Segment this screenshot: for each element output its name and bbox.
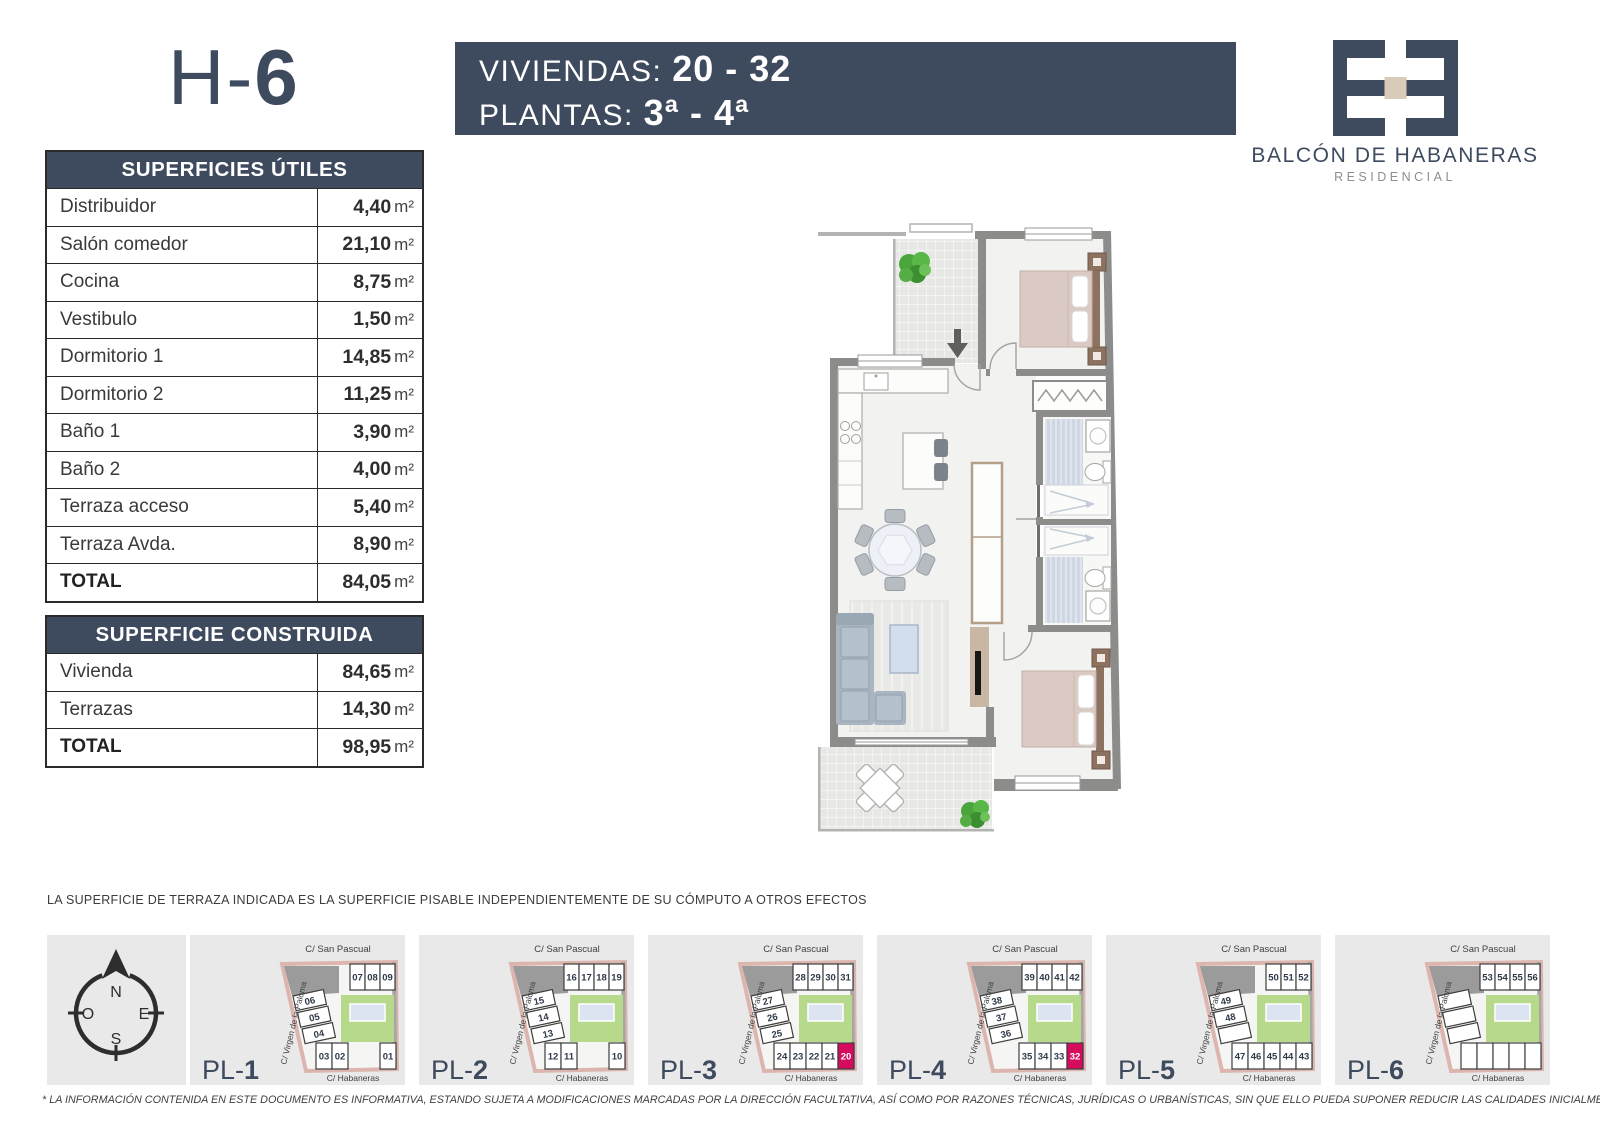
floor-thumbnail-pl-1: C/ San Pascual070809060504030201C/ Virge… <box>190 935 405 1085</box>
wardrobe <box>1033 381 1107 411</box>
plan-label: PL-4 <box>889 1055 946 1085</box>
superficie-construida-table: SUPERFICIE CONSTRUIDA Vivienda84,65m²Ter… <box>45 615 424 768</box>
unit-number: 11 <box>564 1052 575 1063</box>
unit-number: 34 <box>1038 1052 1049 1063</box>
unit-number: 18 <box>596 973 607 984</box>
row-label: Terraza acceso <box>47 489 317 526</box>
tv-icon <box>975 651 981 695</box>
floor-thumbnail-pl-5: C/ San Pascual50515249484746454443C/ Vir… <box>1106 935 1321 1085</box>
row-label: Terraza Avda. <box>47 527 317 564</box>
svg-text:48: 48 <box>1224 1012 1237 1025</box>
unit-cell <box>1477 1043 1493 1069</box>
street-top-label: C/ San Pascual <box>1221 944 1286 955</box>
plan-label: PL-2 <box>431 1055 488 1085</box>
compass-north-label: N <box>110 984 122 1001</box>
legal-disclaimer: * LA INFORMACIÓN CONTENIDA EN ESTE DOCUM… <box>42 1094 1572 1106</box>
site-plan-svg: C/ San Pascual3940414238373635343332C/ V… <box>877 935 1092 1085</box>
tv-wall <box>970 627 989 707</box>
site-plan-svg: C/ San Pascual070809060504030201C/ Virge… <box>190 935 405 1085</box>
unit-number: 44 <box>1283 1052 1294 1063</box>
row-value: 14,85m² <box>317 339 422 376</box>
floor-plan <box>800 223 1130 840</box>
unit-number: 12 <box>548 1052 559 1063</box>
table-row: Cocina8,75m² <box>47 263 422 301</box>
row-label: Vestibulo <box>47 302 317 339</box>
unit-number: 32 <box>1070 1052 1081 1063</box>
table-row: Vestibulo1,50m² <box>47 301 422 339</box>
brand-name: BALCÓN DE HABANERAS <box>1245 144 1545 168</box>
row-value: 3,90m² <box>317 414 422 451</box>
terrace-note: LA SUPERFICIE DE TERRAZA INDICADA ES LA … <box>47 893 867 907</box>
floor-thumbnails-strip: C/ San Pascual070809060504030201C/ Virge… <box>190 935 1550 1085</box>
brochure-page: H-6 VIVIENDAS: 20 - 32 PLANTAS: 3ª - 4ª … <box>0 0 1600 1136</box>
unit-number: 07 <box>352 973 363 984</box>
row-value: 98,95m² <box>317 729 422 766</box>
row-value: 4,00m² <box>317 452 422 489</box>
unit-number: 56 <box>1527 973 1538 984</box>
unit-number: 02 <box>335 1052 346 1063</box>
svg-text:13: 13 <box>542 1028 555 1041</box>
unit-number: 42 <box>1069 973 1080 984</box>
unit-number: 10 <box>612 1052 623 1063</box>
row-label: TOTAL <box>47 564 317 601</box>
street-top-label: C/ San Pascual <box>534 944 599 955</box>
row-label: Distribuidor <box>47 189 317 226</box>
unit-number: 50 <box>1268 973 1279 984</box>
table-row: Terrazas14,30m² <box>47 691 422 729</box>
row-value: 84,05m² <box>317 564 422 601</box>
table-title: SUPERFICIE CONSTRUIDA <box>47 617 422 653</box>
unit-number: 30 <box>825 973 836 984</box>
bathroom-1 <box>1037 417 1111 519</box>
unit-number: 55 <box>1512 973 1523 984</box>
plan-label: PL-5 <box>1118 1055 1175 1085</box>
svg-text:36: 36 <box>1000 1028 1013 1041</box>
page-title: H-6 <box>168 38 298 116</box>
unit-number: 33 <box>1054 1052 1065 1063</box>
table-row: Dormitorio 211,25m² <box>47 376 422 414</box>
street-top-label: C/ San Pascual <box>305 944 370 955</box>
street-bottom-label: C/ Habaneras <box>1243 1073 1295 1083</box>
row-value: 4,40m² <box>317 189 422 226</box>
row-value: 5,40m² <box>317 489 422 526</box>
site-plan-svg: C/ San Pascual282930312726252423222120C/… <box>648 935 863 1085</box>
svg-text:26: 26 <box>766 1012 779 1025</box>
svg-text:38: 38 <box>991 995 1004 1008</box>
pool <box>808 1004 843 1021</box>
unit-number: 6 <box>254 33 297 121</box>
brand-logo-icon <box>1333 40 1458 141</box>
unit-number: 22 <box>809 1052 820 1063</box>
unit-number: 21 <box>825 1052 836 1063</box>
table-row: Salón comedor21,10m² <box>47 226 422 264</box>
street-bottom-label: C/ Habaneras <box>785 1073 837 1083</box>
plan-label: PL-6 <box>1347 1055 1404 1085</box>
svg-text:06: 06 <box>304 995 317 1008</box>
plantas-value: 3ª - 4ª <box>644 92 750 133</box>
unit-number: 54 <box>1497 973 1508 984</box>
unit-cell <box>1525 1043 1541 1069</box>
table-row: Distribuidor4,40m² <box>47 188 422 226</box>
pool <box>350 1004 385 1021</box>
plan-label: PL-3 <box>660 1055 717 1085</box>
table-title: SUPERFICIES ÚTILES <box>47 152 422 188</box>
site-plan-svg: C/ San Pascual50515249484746454443C/ Vir… <box>1106 935 1321 1085</box>
north-arrow-icon <box>102 949 130 979</box>
unit-number: 16 <box>566 973 577 984</box>
unit-prefix: H- <box>168 33 254 121</box>
row-label: Dormitorio 2 <box>47 377 317 414</box>
bathroom-2 <box>1037 525 1111 625</box>
unit-number: 53 <box>1482 973 1493 984</box>
unit-number: 35 <box>1022 1052 1033 1063</box>
header-banner: VIVIENDAS: 20 - 32 PLANTAS: 3ª - 4ª <box>455 42 1236 135</box>
viviendas-line: VIVIENDAS: 20 - 32 <box>479 48 1236 92</box>
compass: N O E S <box>47 935 186 1085</box>
street-top-label: C/ San Pascual <box>1450 944 1515 955</box>
unit-number: 23 <box>793 1052 804 1063</box>
unit-number: 28 <box>795 973 806 984</box>
row-label: Dormitorio 1 <box>47 339 317 376</box>
unit-number: 19 <box>611 973 622 984</box>
table-row: Vivienda84,65m² <box>47 653 422 691</box>
street-bottom-label: C/ Habaneras <box>556 1073 608 1083</box>
row-label: Cocina <box>47 264 317 301</box>
plantas-line: PLANTAS: 3ª - 4ª <box>479 92 1236 136</box>
row-value: 14,30m² <box>317 692 422 729</box>
brand-subtitle: RESIDENCIAL <box>1245 170 1545 184</box>
table-row: Terraza acceso5,40m² <box>47 488 422 526</box>
table-total-row: TOTAL98,95m² <box>47 728 422 766</box>
plan-label: PL-1 <box>202 1055 259 1085</box>
table-row: Baño 13,90m² <box>47 413 422 451</box>
table-body: Distribuidor4,40m²Salón comedor21,10m²Co… <box>47 188 422 601</box>
street-bottom-label: C/ Habaneras <box>327 1073 379 1083</box>
compass-south-label: S <box>111 1031 122 1048</box>
unit-number: 51 <box>1283 973 1294 984</box>
floor-thumbnail-pl-2: C/ San Pascual16171819151413121110C/ Vir… <box>419 935 634 1085</box>
coffee-table <box>890 625 918 673</box>
row-label: Baño 1 <box>47 414 317 451</box>
compass-west-label: O <box>82 1006 94 1023</box>
floor-thumbnail-pl-6: C/ San Pascual53545556C/ Virgen de la Pa… <box>1335 935 1550 1085</box>
row-label: Salón comedor <box>47 227 317 264</box>
unit-number: 31 <box>840 973 851 984</box>
floor-thumbnail-pl-4: C/ San Pascual3940414238373635343332C/ V… <box>877 935 1092 1085</box>
table-row: Dormitorio 114,85m² <box>47 338 422 376</box>
unit-number: 45 <box>1267 1052 1278 1063</box>
pool <box>579 1004 614 1021</box>
svg-text:27: 27 <box>762 995 775 1008</box>
unit-number: 40 <box>1039 973 1050 984</box>
pool <box>1037 1004 1072 1021</box>
unit-number: 47 <box>1235 1052 1246 1063</box>
row-label: Vivienda <box>47 654 317 691</box>
unit-cell <box>1461 1043 1477 1069</box>
table-total-row: TOTAL84,05m² <box>47 563 422 601</box>
street-bottom-label: C/ Habaneras <box>1014 1073 1066 1083</box>
unit-number: 39 <box>1024 973 1035 984</box>
svg-text:37: 37 <box>995 1012 1008 1025</box>
row-label: Baño 2 <box>47 452 317 489</box>
street-top-label: C/ San Pascual <box>992 944 1057 955</box>
plantas-label: PLANTAS: <box>479 99 644 132</box>
unit-number: 08 <box>367 973 378 984</box>
superficies-utiles-table: SUPERFICIES ÚTILES Distribuidor4,40m²Sal… <box>45 150 424 603</box>
unit-number: 03 <box>319 1052 330 1063</box>
row-label: Terrazas <box>47 692 317 729</box>
row-label: TOTAL <box>47 729 317 766</box>
pool <box>1266 1004 1301 1021</box>
compass-east-label: E <box>139 1006 150 1023</box>
unit-cell <box>1493 1043 1509 1069</box>
unit-number: 43 <box>1299 1052 1310 1063</box>
unit-number: 52 <box>1298 973 1309 984</box>
table-row: Baño 24,00m² <box>47 451 422 489</box>
hall-closet <box>972 463 1002 623</box>
unit-number: 17 <box>581 973 592 984</box>
unit-number: 09 <box>382 973 393 984</box>
row-value: 8,75m² <box>317 264 422 301</box>
row-value: 11,25m² <box>317 377 422 414</box>
row-value: 8,90m² <box>317 527 422 564</box>
site-plan-svg: C/ San Pascual53545556C/ Virgen de la Pa… <box>1335 935 1550 1085</box>
site-plan-svg: C/ San Pascual16171819151413121110C/ Vir… <box>419 935 634 1085</box>
viviendas-value: 20 - 32 <box>672 48 791 89</box>
table-row: Terraza Avda.8,90m² <box>47 526 422 564</box>
viviendas-label: VIVIENDAS: <box>479 55 672 88</box>
row-value: 21,10m² <box>317 227 422 264</box>
row-value: 1,50m² <box>317 302 422 339</box>
unit-cell <box>1509 1043 1525 1069</box>
svg-text:49: 49 <box>1220 995 1233 1008</box>
unit-number: 46 <box>1251 1052 1262 1063</box>
unit-number: 20 <box>841 1052 852 1063</box>
pool <box>1495 1004 1530 1021</box>
unit-number: 01 <box>383 1052 394 1063</box>
street-top-label: C/ San Pascual <box>763 944 828 955</box>
unit-number: 29 <box>810 973 821 984</box>
unit-number: 24 <box>777 1052 788 1063</box>
row-value: 84,65m² <box>317 654 422 691</box>
street-bottom-label: C/ Habaneras <box>1472 1073 1524 1083</box>
floor-thumbnail-pl-3: C/ San Pascual282930312726252423222120C/… <box>648 935 863 1085</box>
table-body: Vivienda84,65m²Terrazas14,30m²TOTAL98,95… <box>47 653 422 766</box>
unit-number: 41 <box>1054 973 1065 984</box>
